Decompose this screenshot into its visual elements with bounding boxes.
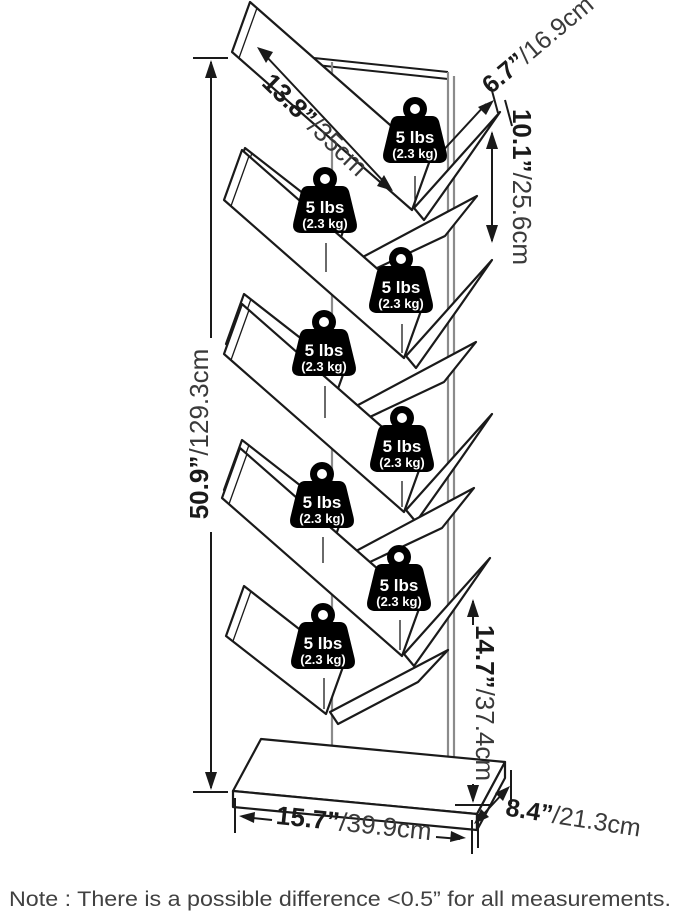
weight-metric: (2.3 kg) (302, 216, 348, 231)
weight-ring-hole (317, 469, 327, 479)
weight-value: 5 lbs (306, 198, 345, 217)
dim-value-cm: /16.9cm (513, 0, 599, 69)
weight-value: 5 lbs (383, 437, 422, 456)
weight-ring-hole (397, 413, 407, 423)
weight-ring-hole (394, 552, 404, 562)
dim-label-base-depth: 8.4”/21.3cm (504, 794, 643, 843)
dim-value-cm: /37.4cm (470, 689, 500, 782)
dim-value-in: 8.4” (504, 794, 555, 829)
dim-overall-height: 50.9”/129.3cm (184, 58, 228, 792)
weight-metric: (2.3 kg) (376, 594, 422, 609)
dim-value-cm: /129.3cm (184, 349, 214, 456)
weight-ring-hole (410, 104, 420, 114)
arrowhead-up-right-icon (478, 100, 494, 115)
weight-value: 5 lbs (304, 634, 343, 653)
dim-value-in: 14.7” (470, 625, 500, 689)
bookshelf-dimension-diagram: 50.9”/129.3cm 13.8”/35cm 6.7”/16.9cm 10.… (0, 0, 679, 920)
weight-value: 5 lbs (380, 576, 419, 595)
weight-value: 5 lbs (303, 493, 342, 512)
weight-value: 5 lbs (382, 278, 421, 297)
weight-metric: (2.3 kg) (378, 296, 424, 311)
weight-ring-hole (319, 317, 329, 327)
dim-value-in: 50.9” (184, 456, 214, 520)
dim-tier-gap: 10.1”/25.6cm (486, 109, 537, 265)
arrowhead-right-icon (450, 831, 466, 842)
weight-ring-hole (318, 610, 328, 620)
dim-value-in: 10.1” (507, 109, 537, 173)
dim-value-cm: /21.3cm (550, 801, 642, 843)
note-text: Note : There is a possible difference <0… (9, 887, 671, 911)
weight-metric: (2.3 kg) (300, 652, 346, 667)
weight-metric: (2.3 kg) (379, 455, 425, 470)
diagram-canvas: 50.9”/129.3cm 13.8”/35cm 6.7”/16.9cm 10.… (0, 0, 679, 920)
dim-value-in: 15.7” (275, 800, 341, 836)
weight-metric: (2.3 kg) (301, 359, 347, 374)
dim-label-tier-gap: 10.1”/25.6cm (507, 109, 537, 265)
dim-label-shelf-depth: 6.7”/16.9cm (477, 0, 599, 99)
weight-value: 5 lbs (305, 341, 344, 360)
weight-ring-hole (320, 174, 330, 184)
dim-label-overall-height: 50.9”/129.3cm (184, 349, 214, 520)
weight-metric: (2.3 kg) (392, 146, 438, 161)
weight-ring-hole (396, 254, 406, 264)
weight-value: 5 lbs (396, 128, 435, 147)
dim-label-base-clearance: 14.7”/37.4cm (470, 625, 500, 781)
weight-metric: (2.3 kg) (299, 511, 345, 526)
dim-value-cm: /25.6cm (507, 173, 537, 266)
